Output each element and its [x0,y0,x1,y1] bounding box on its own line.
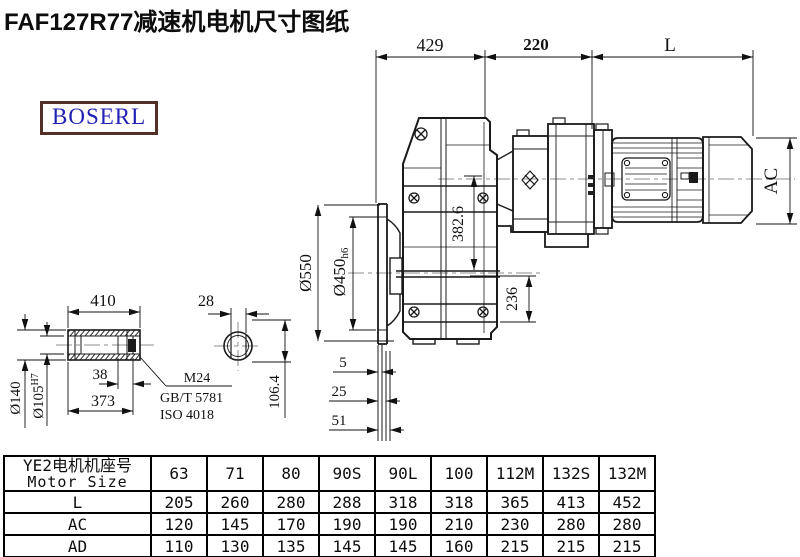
motor-size-header-en: Motor Size [5,474,150,490]
dimension-cell: 145 [319,535,375,557]
dim-AC: AC [761,168,782,194]
size-column-header: 112M [487,456,543,491]
dimension-cell: 215 [543,535,599,557]
dim-3826: 382.6 [450,206,467,242]
size-column-header: 90S [319,456,375,491]
dimension-cell: 120 [151,513,207,535]
dimension-cell: 145 [207,513,263,535]
dimension-cell: 190 [375,513,431,535]
dimension-cell: 145 [375,535,431,557]
bolt-icon [409,128,488,317]
dimension-cell: 190 [319,513,375,535]
size-column-header: 71 [207,456,263,491]
dimension-cell: 318 [431,491,487,513]
output-flange [378,204,402,344]
dim-1064: 106.4 [267,375,283,409]
dim-28: 28 [198,293,214,310]
size-column-header: 63 [151,456,207,491]
dimension-cell: 170 [263,513,319,535]
callout-m24: M24 [184,371,210,386]
dimension-cell: 280 [599,513,655,535]
dim-25: 25 [332,384,347,400]
size-column-header: 100 [431,456,487,491]
dimension-cell: 135 [263,535,319,557]
dimension-cell: 280 [263,491,319,513]
motor-size-header-cn: YE2电机机座号 [5,457,150,474]
dim-d450: Ø450h6 [330,247,351,296]
size-column-header: 80 [263,456,319,491]
callout-iso4018: ISO 4018 [160,408,214,423]
dim-51: 51 [332,413,347,429]
dim-5: 5 [339,355,347,371]
dimension-cell: 210 [431,513,487,535]
dim-373: 373 [91,393,115,410]
row-label: AC [4,513,151,535]
dim-236: 236 [504,287,521,311]
shaft-bolt-icon [522,171,538,189]
dimension-cell: 365 [487,491,543,513]
row-label: AD [4,535,151,557]
drawing-page: FAF127R77减速机电机尺寸图纸 BOSERL [0,0,800,557]
dim-d550: Ø550 [296,254,315,292]
table-row: AC120145170190190210230280280 [4,513,655,535]
fan-cowl [703,137,752,223]
dim-L: L [664,35,676,56]
size-column-header: 90L [375,456,431,491]
dim-38: 38 [93,367,108,383]
dimension-cell: 280 [543,513,599,535]
flange-reference-lines [378,345,390,441]
table-row: L205260280288318318365413452 [4,491,655,513]
gearbox-housing [396,118,500,344]
callout-gbt5781: GB/T 5781 [160,391,223,406]
dimension-cell: 110 [151,535,207,557]
dimension-cell: 130 [207,535,263,557]
dimensions [17,50,797,430]
size-column-header: 132M [599,456,655,491]
dimension-cell: 215 [599,535,655,557]
centerlines [56,179,795,371]
dimension-labels: 429 220 L AC Ø550 Ø450h6 382.6 236 5 25 … [8,35,782,429]
dimension-cell: 260 [207,491,263,513]
dim-d140: Ø140 [8,381,24,414]
dimension-cell: 230 [487,513,543,535]
r77-gear-unit [497,118,594,247]
dim-429: 429 [417,35,444,55]
motor-size-table: YE2电机机座号Motor Size63718090S90L100112M132… [3,455,656,557]
motor-size-header: YE2电机机座号Motor Size [4,456,151,491]
dimension-cell: 205 [151,491,207,513]
table-row: AD110130135145145160215215215 [4,535,655,557]
dimension-cell: 318 [375,491,431,513]
dim-220: 220 [523,35,549,54]
dimension-cell: 288 [319,491,375,513]
row-label: L [4,491,151,513]
dim-d105: Ø105H7 [30,373,47,419]
dim-410: 410 [90,291,116,310]
dimension-cell: 160 [431,535,487,557]
dimension-cell: 215 [487,535,543,557]
dimension-cell: 452 [599,491,655,513]
dimension-cell: 413 [543,491,599,513]
size-column-header: 132S [543,456,599,491]
